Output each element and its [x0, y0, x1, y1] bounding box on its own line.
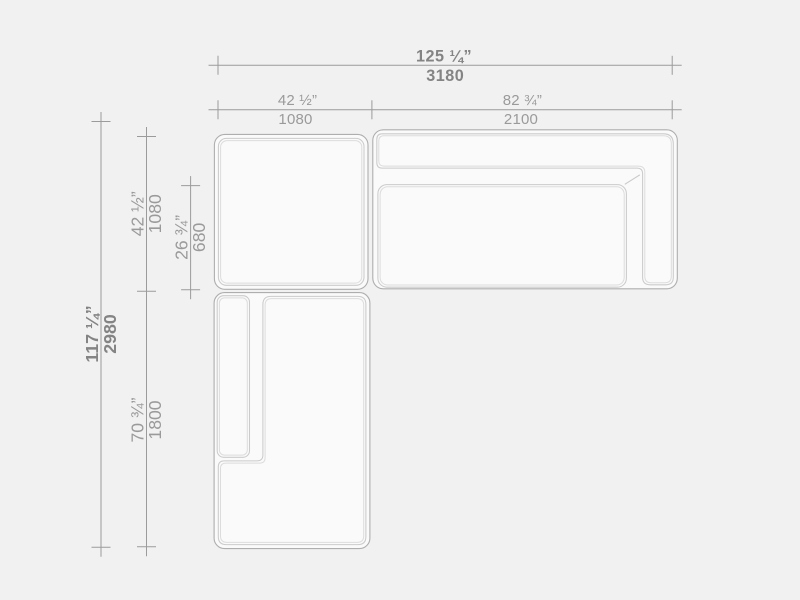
svg-text:42 ½”: 42 ½” — [278, 92, 317, 109]
svg-text:117 ¼”: 117 ¼” — [82, 305, 102, 362]
svg-text:82 ¾”: 82 ¾” — [503, 92, 542, 109]
svg-text:680: 680 — [189, 223, 209, 253]
svg-text:1080: 1080 — [145, 194, 165, 233]
svg-text:1800: 1800 — [145, 400, 165, 439]
svg-text:125 ¼”: 125 ¼” — [416, 47, 472, 65]
svg-text:1080: 1080 — [278, 111, 312, 128]
svg-text:2100: 2100 — [504, 111, 538, 128]
svg-text:2980: 2980 — [100, 314, 120, 354]
svg-text:3180: 3180 — [426, 67, 464, 85]
